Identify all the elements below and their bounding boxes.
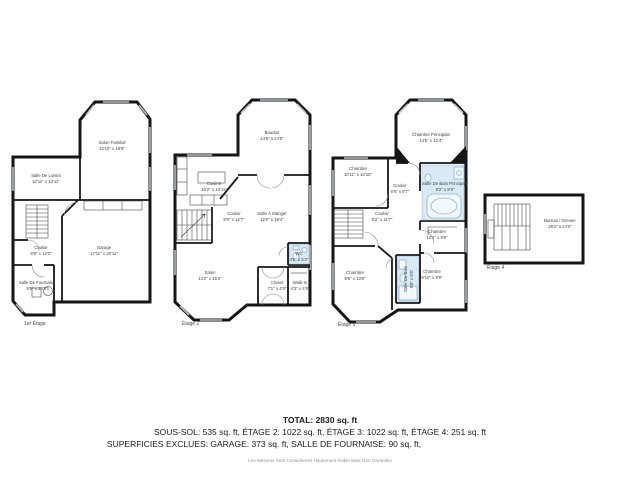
- room-label-garage: Garage 17'11" x 20'11": [90, 245, 118, 257]
- room-label-salle-de-bain-principale: Salle De Bain Principale 8'2" x 9'3": [422, 181, 468, 193]
- garage-shelving: [84, 201, 142, 210]
- room-label-salle-de-loisirs: Salle De Loisirs 10'11" x 10'11": [31, 173, 61, 185]
- room-label-boudoir: Boudoir 14'5" x 14'5": [260, 130, 284, 142]
- room-label-wc: WC 4'5" x 5'2": [290, 251, 309, 263]
- room-label-couloir-1er: Couloir 9'9" x 12'0": [30, 245, 51, 257]
- caption-etage-3: Étage 3: [338, 322, 355, 328]
- floorplan-etage-3: [330, 98, 475, 328]
- stairs-icon: [26, 205, 48, 238]
- room-label-chambre-sud-ouest: Chambre 9'6" x 13'8": [344, 270, 365, 282]
- room-label-couloir-petit: Couloir 6'6" x 8'7": [391, 183, 410, 195]
- floor-areas: SOUS-SOL: 535 sq. ft, ÉTAGE 2: 1022 sq. …: [0, 427, 640, 437]
- room-label-closet: Closet 7'1" x 4'9": [268, 280, 287, 292]
- room-label-couloir-etage2: Couloir 8'0" x 12'7": [223, 211, 244, 223]
- total-area: TOTAL: 2830 sq. ft: [0, 415, 640, 425]
- room-label-chambre-est: Chambre 12'2" x 9'9": [426, 229, 447, 241]
- stairs-icon: [488, 204, 530, 250]
- room-label-salle-de-fournaise: Salle De Fournaise 9'9" x 10'2": [19, 280, 56, 292]
- room-label-salon: Salon 14'2" x 15'2": [198, 270, 222, 282]
- excluded-areas: SUPERFICIES EXCLUES: GARAGE: 373 sq. ft,…: [0, 439, 640, 449]
- boudoir-french-doors: [257, 175, 284, 188]
- caption-etage-4: Étage 4: [487, 265, 504, 271]
- caption-1er-etage: 1er Étage: [24, 321, 46, 327]
- room-label-chambre-nord: Chambre 10'11" x 10'10": [344, 166, 372, 178]
- room-label-bureau-grenier: Bureau / Grenier 28'2" x 14'0": [544, 218, 576, 230]
- room-label-couloir-etage3: Couloir 9'2" x 11'7": [372, 211, 393, 223]
- room-label-salon-familial: Salon Familial 13'10" x 19'9": [99, 140, 126, 152]
- room-label-cuisine: Cuisine 16'2" x 10'11": [201, 181, 227, 193]
- room-label-salle-a-manger: Salle À Manger 12'0" x 19'4": [257, 211, 286, 223]
- room-label-salle-de-bain: Salle De Bain 5'0" x 9'6": [403, 266, 415, 292]
- room-label-chambre-principale: Chambre Principale 14'5" x 12'4": [412, 132, 450, 144]
- room-label-walk-in: Walk-In 4'3" x 4'9": [291, 280, 310, 292]
- stairs-icon: [177, 210, 212, 240]
- disclaimer-text: Les Mesures Sont Considerees Hautement F…: [0, 458, 640, 463]
- caption-etage-2: Étage 2: [182, 321, 199, 327]
- area-summary: TOTAL: 2830 sq. ft SOUS-SOL: 535 sq. ft,…: [0, 415, 640, 449]
- stairs-icon: [333, 210, 363, 238]
- room-label-chambre-sud-est: Chambre 9'10" x 9'9": [421, 269, 442, 281]
- floorplan-sheet: Salon Familial 13'10" x 19'9" Salle De L…: [0, 0, 640, 480]
